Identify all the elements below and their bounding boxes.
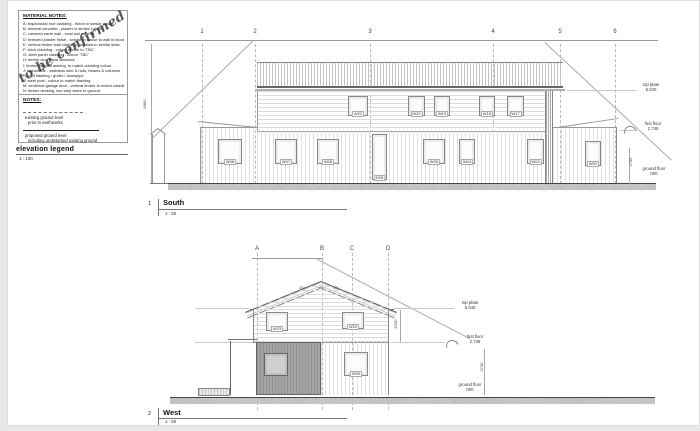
window-tag: W19 (436, 111, 448, 117)
existing-ground-line-sample (23, 112, 83, 113)
grid-label: 3 (365, 29, 375, 35)
door: D05 (372, 134, 387, 180)
proposed-ground-line-sample (23, 130, 99, 131)
proposed-ground-sub: including undisturbed existing ground (28, 138, 97, 143)
window: W04 (459, 139, 475, 164)
storey-dimension-text: 2745 (629, 150, 633, 174)
roof-dimension-text: 5340 (394, 312, 398, 336)
window: W17 (507, 96, 524, 116)
level-extension-line (195, 308, 250, 309)
window-tag: W09 (350, 371, 362, 377)
view-number: 2 (148, 411, 151, 417)
general-notes: NOTES: existing ground level prior to ea… (23, 98, 124, 105)
page-edge-left (0, 0, 7, 431)
view-title: West (163, 408, 181, 417)
window: W19 (434, 96, 450, 116)
window-tag: W17 (509, 111, 521, 117)
view-number: 1 (148, 201, 151, 207)
page-edge-bottom (0, 426, 700, 431)
elevation-legend: elevation legend 1 : 100 (16, 146, 128, 161)
level-extension-line (195, 342, 253, 343)
level-marker-ground-floor: ground floor 000 (455, 382, 485, 393)
window: W23 (266, 312, 288, 331)
window-tag: W23 (271, 326, 283, 332)
view-title: South (163, 198, 184, 207)
drawing-canvas: MATERIAL NOTES: A: trapezoidal roof clad… (0, 0, 700, 431)
window-tag: W06 (322, 159, 334, 165)
porch-post (230, 341, 231, 395)
level-leader (391, 342, 445, 343)
window-tag: W20 (410, 111, 422, 117)
level-leader (567, 90, 637, 91)
window: W21 (348, 96, 368, 116)
window-tag: W05 (428, 159, 440, 165)
window: W03 (527, 139, 544, 164)
window-tag: W22 (347, 324, 359, 330)
existing-ground-sub: prior to earthworks (28, 120, 63, 125)
window: W08 (218, 139, 242, 164)
level-marker-top-plate: top plate 5.040 (637, 82, 665, 93)
grid-label: 4 (488, 29, 498, 35)
envelope-line (145, 40, 658, 41)
window: W18 (479, 96, 495, 116)
grid-label: D (383, 246, 393, 252)
title-underline (158, 209, 347, 210)
view-scale: 1 : 50 (165, 211, 176, 216)
door-tag: D05 (374, 175, 385, 181)
material-note-item: N: timber decking, two step down to grou… (23, 88, 124, 93)
level-leader (394, 308, 454, 309)
window-tag: W08 (224, 159, 236, 165)
title-underline (158, 418, 347, 419)
corner-trim (545, 91, 553, 183)
grid-label: B (317, 246, 327, 252)
window: W02 (585, 141, 601, 166)
window: W07 (275, 139, 297, 164)
title-divider (158, 199, 159, 216)
deck-steps (198, 388, 230, 396)
window-tag: W02 (587, 161, 599, 167)
ground-floor-wall (257, 131, 545, 183)
roof-dimension-line (400, 310, 401, 342)
window-tag: W07 (280, 159, 292, 165)
ground-line (150, 183, 168, 184)
grid-label: 6 (610, 29, 620, 35)
window: W06 (317, 139, 339, 164)
level-marker-top-plate: top plate 5.040 (456, 300, 484, 311)
main-roof (257, 62, 563, 88)
ground-band (168, 183, 656, 190)
garage-door-window (264, 353, 288, 376)
window: W05 (423, 139, 445, 164)
title-divider (158, 408, 159, 425)
window: W09 (344, 352, 368, 376)
grid-label: C (347, 246, 357, 252)
level-marker-first-floor: first floor 2.745 (639, 121, 667, 132)
storey-dimension-text: 2745 (480, 355, 484, 379)
window-tag: W21 (352, 111, 364, 117)
window: W20 (408, 96, 425, 116)
window-tag: W18 (481, 111, 493, 117)
level-marker-ground-floor: ground floor 000 (639, 166, 669, 177)
gate-post (152, 134, 153, 183)
window-tag: W04 (461, 159, 473, 165)
grid-label: A (252, 246, 262, 252)
roof-pitch-label: 45° (299, 285, 305, 290)
grid-label: 5 (555, 29, 565, 35)
gate-post (164, 134, 165, 183)
notes-title: NOTES: (23, 98, 124, 103)
level-marker-first-floor: first floor 2.745 (461, 334, 489, 345)
height-dimension-text: 8460 (143, 86, 147, 122)
notes-divider (19, 94, 127, 95)
envelope-line (252, 258, 323, 259)
window-tag: W03 (529, 159, 541, 165)
legend-underline (16, 154, 128, 155)
grid-label: 1 (197, 29, 207, 35)
roof-pitch-label: 45° (333, 285, 339, 290)
window: W22 (342, 312, 364, 329)
ground-band (170, 397, 655, 404)
elevation-legend-title: elevation legend (16, 146, 128, 153)
legend-scale: 1 : 100 (19, 156, 128, 161)
first-floor-wall (257, 91, 545, 131)
view-scale: 1 : 50 (165, 419, 176, 424)
porch-roof-line (228, 339, 257, 340)
grid-label: 2 (250, 29, 260, 35)
